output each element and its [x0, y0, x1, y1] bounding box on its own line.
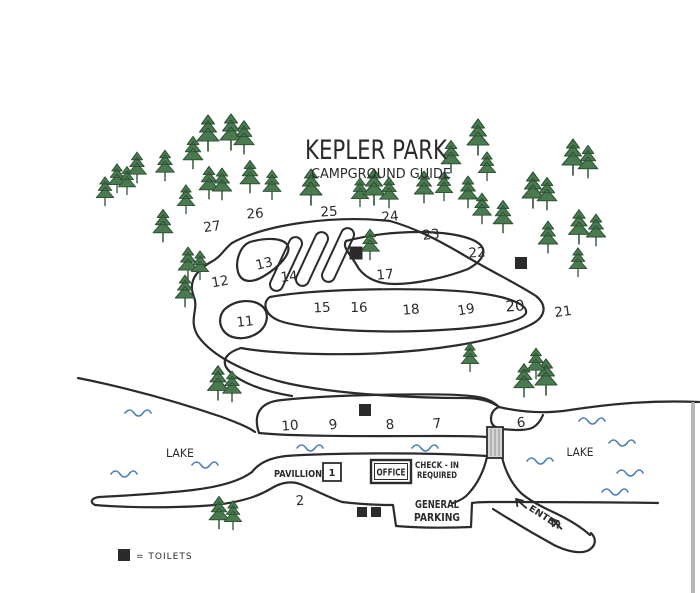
shoreline-right-north — [499, 401, 699, 412]
checkin-label-line1: CHECK - IN — [415, 461, 459, 471]
site-number-16: 16 — [350, 300, 367, 316]
pine-tree-icon — [522, 172, 544, 208]
water-wave-icon — [111, 471, 137, 477]
checkin-label-line2: REQUIRED — [417, 471, 457, 481]
pavilion-label: PAVILLION — [274, 469, 322, 480]
pine-tree-icon — [212, 168, 231, 200]
water-wave-icon — [527, 458, 553, 464]
pine-tree-icon — [586, 214, 605, 246]
site-number-25: 25 — [320, 204, 338, 221]
site-number-26: 26 — [246, 205, 264, 222]
lake-left-label: LAKE — [166, 446, 194, 460]
site-number-23: 23 — [422, 226, 441, 244]
pavilion-box: 1 — [323, 463, 341, 481]
image-viewer-page: 2726252423222120191817161514131211109876… — [0, 0, 700, 593]
site-number-8: 8 — [385, 417, 395, 434]
toilet-marker — [515, 257, 527, 269]
pine-tree-icon — [240, 160, 260, 192]
pine-tree-icon — [208, 366, 229, 400]
water-wave-icon — [297, 445, 323, 451]
site-number-6: 6 — [516, 415, 526, 432]
pine-tree-icon — [538, 221, 557, 253]
pine-tree-icon — [153, 209, 173, 241]
pine-tree-icon — [569, 248, 587, 277]
campground-map: 2726252423222120191817161514131211109876… — [0, 0, 700, 593]
road-inner-oval-15-20 — [265, 289, 526, 331]
site-number-19: 19 — [456, 301, 476, 320]
office-box: OFFICE — [371, 460, 411, 483]
site-number-24: 24 — [381, 208, 400, 225]
water-wave-icon — [125, 410, 151, 416]
site-number-21: 21 — [554, 303, 573, 321]
pine-tree-icon — [458, 176, 477, 208]
parking-label-line2: PARKING — [414, 512, 460, 524]
pine-tree-icon — [263, 170, 281, 200]
site-number-18: 18 — [402, 301, 421, 318]
road-west-upper — [92, 472, 252, 505]
toilet-marker — [357, 507, 367, 517]
pine-tree-icon — [209, 496, 229, 528]
pine-tree-icon — [197, 115, 219, 151]
pine-tree-icon — [569, 210, 590, 244]
water-wave-icon — [579, 418, 605, 424]
pine-tree-icon — [156, 150, 175, 181]
site-number-2: 2 — [295, 493, 305, 510]
pine-tree-icon — [562, 139, 584, 175]
bridge — [487, 427, 503, 458]
site-number-14: 14 — [280, 268, 299, 286]
site-number-17: 17 — [376, 266, 394, 283]
site-number-12: 12 — [210, 273, 230, 292]
legend: = TOILETS — [118, 549, 193, 562]
site-number-9: 9 — [328, 416, 339, 433]
pine-tree-icon — [478, 152, 496, 181]
water-wave-icon — [617, 470, 643, 476]
pine-tree-icon — [177, 185, 195, 214]
legend-toilet-square — [118, 549, 130, 561]
office-label: OFFICE — [377, 468, 406, 479]
water-wave-icon — [602, 489, 628, 495]
toilet-marker — [359, 404, 371, 416]
map-subtitle: CAMPGROUND GUIDE — [311, 166, 451, 182]
pine-tree-icon — [461, 343, 479, 372]
enter-arrow-icon — [515, 499, 527, 508]
legend-label: = TOILETS — [136, 552, 193, 562]
site-number-11: 11 — [236, 313, 255, 331]
site-number-22: 22 — [468, 244, 486, 261]
water-wave-icon — [192, 462, 218, 468]
map-title: KEPLER PARK — [305, 135, 448, 166]
toilet-marker — [350, 247, 363, 260]
parking-label-line1: GENERAL — [415, 499, 459, 511]
scrollbar-thumb[interactable] — [691, 402, 695, 593]
site-number-10: 10 — [281, 417, 300, 434]
pine-tree-icon — [467, 119, 489, 155]
site-number-7: 7 — [432, 416, 442, 433]
site-number-15: 15 — [313, 300, 331, 317]
toilet-marker — [371, 507, 381, 517]
lake-right-label: LAKE — [567, 445, 594, 459]
pine-tree-icon — [493, 200, 513, 232]
water-wave-icon — [412, 445, 438, 451]
site-number-27: 27 — [203, 218, 222, 236]
parking-outline-and-south-shore — [342, 502, 658, 528]
pine-tree-icon — [224, 501, 242, 530]
pavilion-box-number: 1 — [329, 468, 336, 479]
water-wave-icon — [609, 440, 635, 446]
pine-tree-icon — [361, 229, 380, 260]
site-number-20: 20 — [505, 296, 525, 315]
